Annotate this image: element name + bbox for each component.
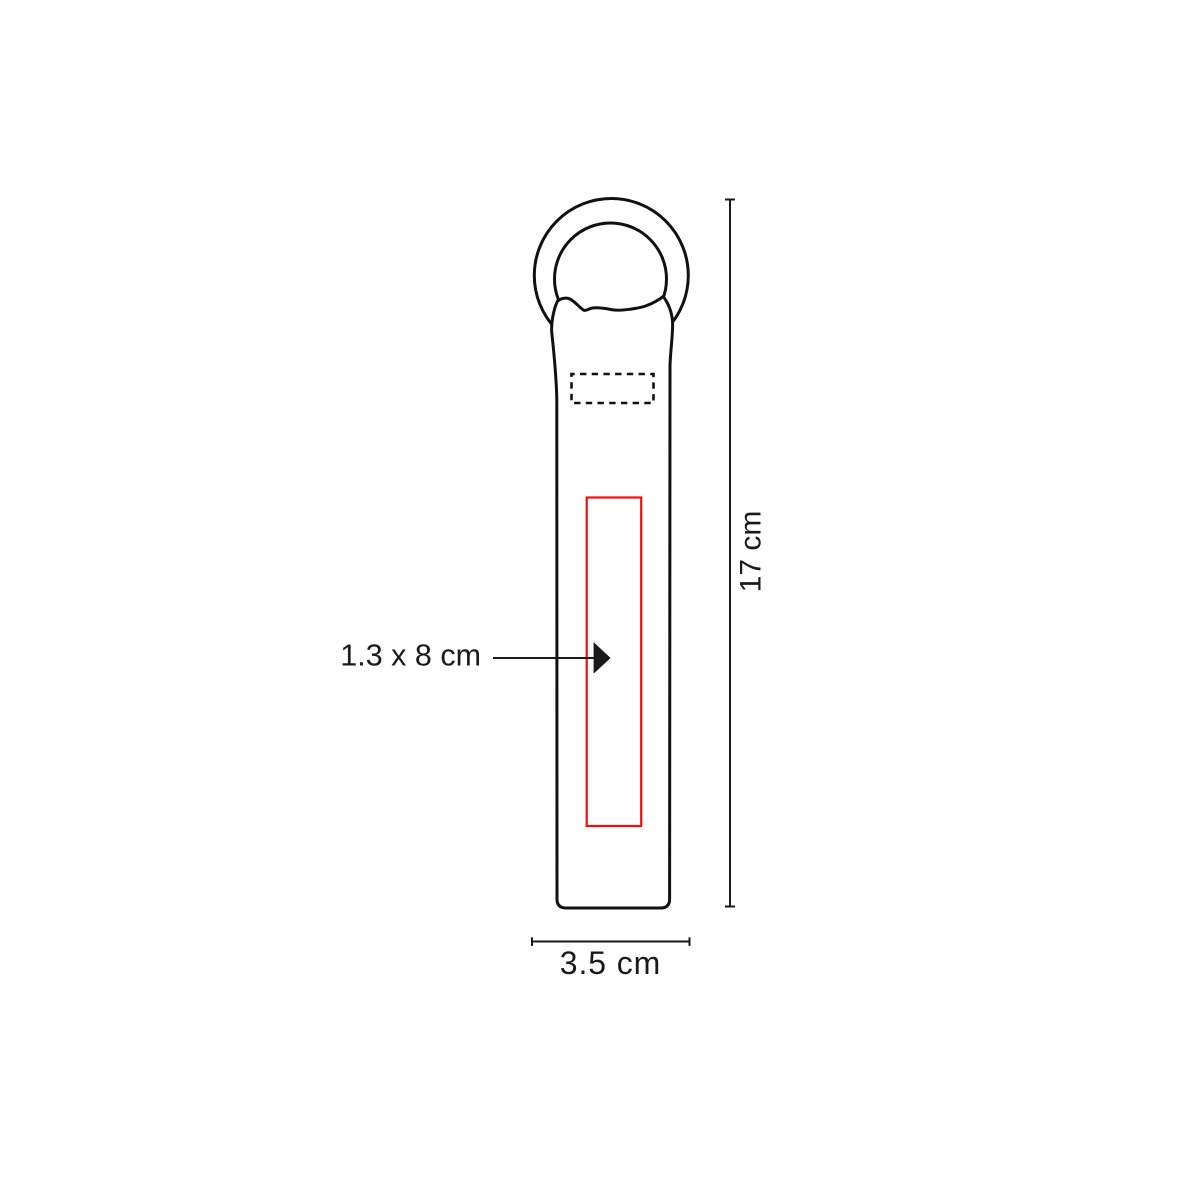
svg-text:17 cm: 17 cm [735, 511, 768, 593]
svg-text:1.3 x 8 cm: 1.3 x 8 cm [340, 639, 481, 673]
svg-text:3.5 cm: 3.5 cm [560, 945, 661, 981]
